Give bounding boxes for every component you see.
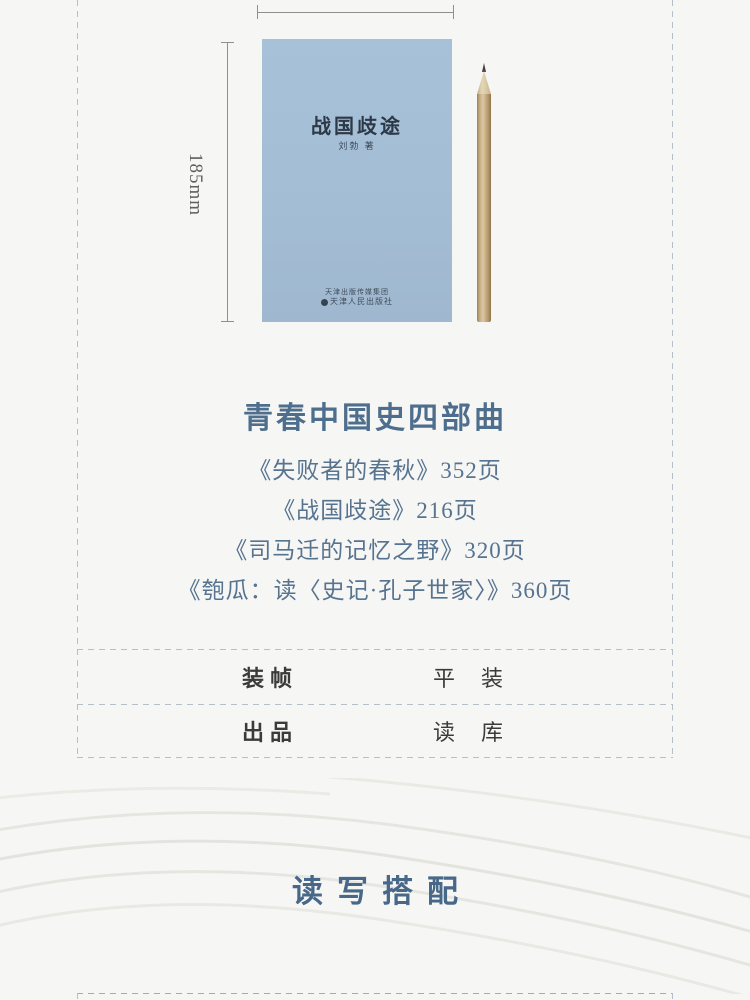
book-cover-image: 战国歧途 刘勃 著 天津出版传媒集团 天津人民出版社 [262, 39, 452, 322]
product-frame-right-border [672, 0, 673, 757]
next-section-top-border [77, 993, 673, 994]
width-measure-tick-left [257, 5, 258, 19]
spec-row-binding: 装帧 平 装 [77, 650, 672, 704]
book-cover-author: 刘勃 著 [262, 139, 452, 152]
width-measure-tick-right [453, 5, 454, 19]
spec-value: 读 库 [433, 715, 505, 747]
spec-table-bottom-divider [77, 757, 673, 758]
spec-value: 平 装 [433, 661, 505, 693]
spec-label: 装帧 [242, 661, 298, 693]
publisher-logo-icon [321, 299, 328, 306]
list-item: 《匏瓜：读〈史记·孔子世家〉》360页 [0, 571, 750, 611]
list-item: 《失败者的春秋》352页 [0, 451, 750, 491]
next-section-left-border [77, 993, 78, 1000]
pencil-body [477, 94, 491, 322]
height-measure-label: 185mm [184, 153, 206, 213]
pencil-graphite-tip [482, 63, 486, 72]
pencil-image [477, 63, 491, 322]
book-cover-publisher: 天津出版传媒集团 天津人民出版社 [262, 288, 452, 308]
height-measure-tick-bottom [221, 321, 234, 322]
next-section-right-border [672, 993, 673, 1000]
spec-row-producer: 出品 读 库 [77, 704, 672, 758]
book-cover-title: 战国歧途 [262, 110, 452, 139]
spec-label: 出品 [242, 715, 298, 747]
series-heading: 青春中国史四部曲 [0, 393, 750, 437]
list-item: 《战国歧途》216页 [0, 491, 750, 531]
height-measure-tick-top [221, 42, 234, 43]
series-book-list: 《失败者的春秋》352页 《战国歧途》216页 《司马迁的记忆之野》320页 《… [0, 451, 750, 611]
product-frame-left-border [77, 0, 78, 757]
pencil-sharpened-cone [477, 71, 491, 94]
width-measure-line [257, 12, 454, 13]
height-measure-line [227, 42, 228, 322]
publisher-text: 天津人民出版社 [262, 297, 452, 308]
list-item: 《司马迁的记忆之野》320页 [0, 531, 750, 571]
bottom-section-title: 读写搭配 [0, 866, 750, 911]
